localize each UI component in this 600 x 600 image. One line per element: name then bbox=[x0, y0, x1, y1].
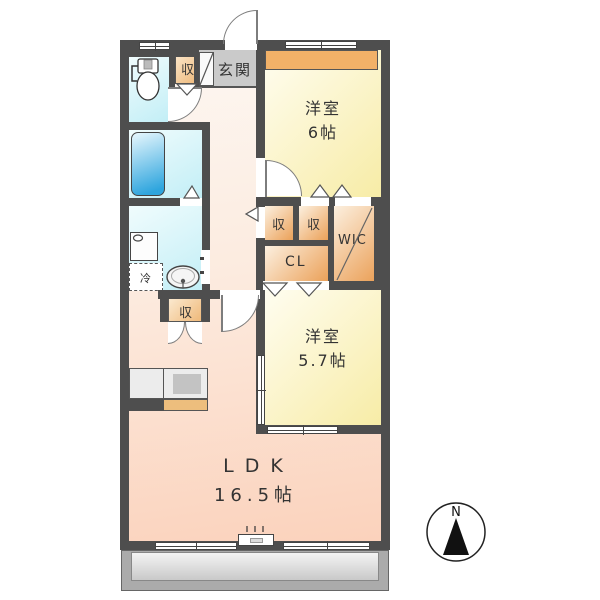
window-room5-7-bottom bbox=[267, 426, 338, 434]
room-western-6-label: 洋室 6帖 bbox=[265, 97, 381, 145]
walk-in-closet: WIC bbox=[334, 205, 375, 282]
wall bbox=[374, 197, 381, 290]
door-leaf-room6 bbox=[265, 160, 267, 197]
closet-band bbox=[265, 50, 378, 70]
window-toilet bbox=[139, 42, 170, 50]
window-ldk-right bbox=[283, 542, 370, 550]
ldk-name: LDK bbox=[170, 455, 336, 477]
room-name: 洋室 bbox=[265, 325, 381, 349]
room-size: 6帖 bbox=[265, 121, 381, 145]
wall bbox=[328, 197, 334, 290]
storage-hall: 収 bbox=[168, 298, 202, 322]
compass: N bbox=[427, 503, 485, 561]
storage-label: 収 bbox=[307, 214, 320, 233]
storage-label: 収 bbox=[272, 214, 285, 233]
door-opening-storage-right bbox=[301, 197, 329, 206]
door-leaf-entrance bbox=[256, 10, 258, 44]
room-western-5-7-label: 洋室 5.7帖 bbox=[265, 325, 381, 373]
wall bbox=[120, 399, 164, 411]
kitchen-lower-band bbox=[163, 399, 208, 411]
wall bbox=[160, 290, 168, 322]
storage-middle-right: 収 bbox=[299, 206, 328, 240]
storage-label: 収 bbox=[181, 59, 194, 78]
door-opening-wic bbox=[335, 197, 371, 206]
water-heater-vent bbox=[250, 538, 263, 543]
counter-divider bbox=[163, 369, 164, 398]
door-opening-cl bbox=[263, 281, 329, 290]
balcony bbox=[121, 550, 389, 591]
door-opening-bath bbox=[180, 198, 202, 206]
shoe-cabinet bbox=[199, 52, 214, 86]
wall bbox=[169, 50, 175, 92]
bathtub bbox=[131, 132, 165, 196]
compass-north-label: N bbox=[451, 505, 461, 520]
wic-label: WIC bbox=[338, 233, 367, 248]
refrigerator-label: 冷 bbox=[140, 270, 151, 286]
room-western-5-7: 洋室 5.7帖 bbox=[265, 290, 381, 426]
wall bbox=[293, 206, 299, 240]
wall bbox=[120, 122, 210, 130]
wall bbox=[381, 40, 390, 550]
storage-label: 収 bbox=[179, 302, 192, 321]
window-room6 bbox=[285, 41, 357, 49]
kitchen-counter bbox=[129, 368, 208, 399]
wall bbox=[256, 240, 334, 246]
washing-machine-pan bbox=[130, 232, 158, 261]
room-name: 洋室 bbox=[265, 97, 381, 121]
toilet-room bbox=[129, 57, 169, 122]
door-leaf-toilet bbox=[168, 87, 202, 89]
refrigerator-space: 冷 bbox=[129, 263, 163, 291]
room-size: 5.7帖 bbox=[265, 349, 381, 373]
compass-circle bbox=[427, 503, 485, 561]
closet-label: CL bbox=[285, 254, 307, 270]
sliding-door-washroom bbox=[201, 250, 210, 284]
door-arc-entrance bbox=[223, 10, 257, 44]
water-heater bbox=[238, 534, 274, 546]
wall bbox=[202, 130, 210, 322]
window-ldk-left bbox=[155, 542, 237, 550]
entrance-label: 玄関 bbox=[218, 59, 252, 80]
closet-cl: CL bbox=[265, 246, 328, 281]
wall bbox=[120, 40, 129, 550]
balcony-floor bbox=[131, 552, 379, 581]
storage-middle-left: 収 bbox=[265, 206, 293, 240]
door-leaf-ldk bbox=[221, 295, 223, 332]
door-opening-room6 bbox=[256, 158, 265, 197]
sliding-door-room5-7 bbox=[257, 355, 265, 425]
floor-plan: 洋室 6帖 洋室 5.7帖 玄関 収 冷 収 収 収 CL WIC bbox=[0, 0, 600, 600]
ldk-size: 16.5帖 bbox=[170, 481, 336, 507]
door-opening-storage-left bbox=[256, 207, 265, 238]
wall bbox=[194, 50, 199, 88]
kitchen-sink bbox=[173, 374, 201, 394]
wall bbox=[129, 50, 199, 57]
compass-needle-icon bbox=[443, 518, 469, 555]
ldk-label: LDK 16.5帖 bbox=[170, 455, 336, 507]
